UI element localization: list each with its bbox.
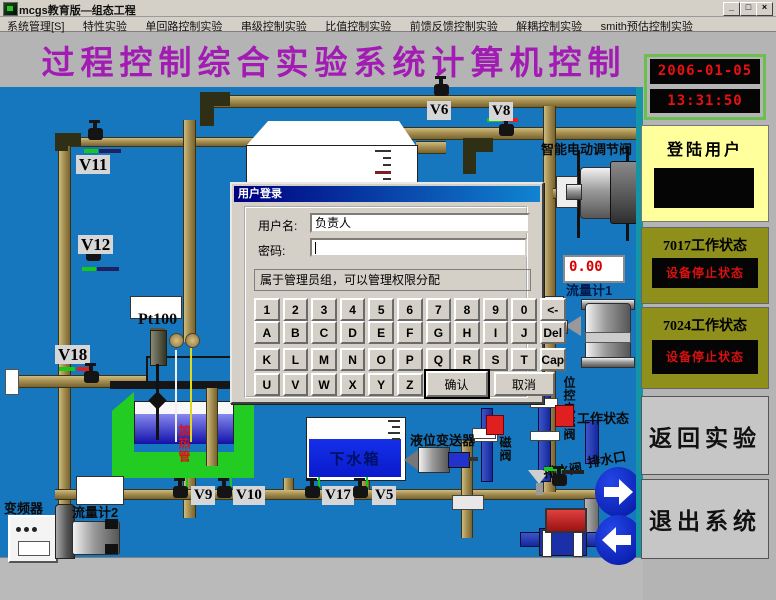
key-g[interactable]: G [426, 321, 452, 344]
pipe-elbow [55, 133, 68, 151]
key-cap[interactable]: Cap [540, 348, 566, 371]
username-combobox[interactable]: 负责人 [310, 213, 530, 233]
menu-item-single-loop[interactable]: 单回路控制实验 [145, 20, 222, 34]
flow-direction-right-icon [595, 467, 642, 517]
restore-button[interactable]: □ [740, 2, 757, 16]
status-7017-title: 7017工作状态 [642, 235, 768, 255]
key-x[interactable]: X [340, 373, 366, 396]
flow-meter-leg [542, 530, 552, 557]
key-d[interactable]: D [340, 321, 366, 344]
key-s[interactable]: S [483, 348, 509, 371]
pipe-elbow [200, 92, 214, 126]
menu-item-characteristic[interactable]: 特性实验 [83, 20, 127, 34]
key-backspace[interactable]: <- [540, 298, 566, 321]
mcgs-window: mcgs教育版—组态工程 _ □ × 系统管理[S] 特性实验 单回路控制实验 … [0, 0, 776, 600]
key-0[interactable]: 0 [511, 298, 537, 321]
key-4[interactable]: 4 [340, 298, 366, 321]
key-6[interactable]: 6 [397, 298, 423, 321]
pt100-label: Pt100 [138, 311, 177, 329]
status-7017-value: 设备停止状态 [652, 258, 758, 288]
valve-v5-icon[interactable] [353, 486, 368, 498]
valve-v17-icon[interactable] [305, 486, 320, 498]
work-status-label: 工作状态 [577, 408, 629, 427]
key-v[interactable]: V [283, 373, 309, 396]
pipe-elbow [463, 140, 476, 174]
dialog-titlebar: 用户登录 [234, 186, 540, 202]
status-panel-7024: 7024工作状态 设备停止状态 [641, 307, 769, 389]
date-display: 2006-01-05 [650, 59, 760, 84]
key-3[interactable]: 3 [311, 298, 337, 321]
valve-v5-label: V5 [372, 486, 396, 505]
key-q[interactable]: Q [426, 348, 452, 371]
key-h[interactable]: H [454, 321, 480, 344]
valve-v18-icon[interactable] [84, 371, 99, 383]
back-to-experiment-button[interactable]: 返回实验 [641, 396, 769, 475]
login-user-value [654, 168, 754, 208]
key-w[interactable]: W [311, 373, 337, 396]
key-o[interactable]: O [368, 348, 394, 371]
login-dialog: 用户登录 用户名: 负责人 密码: 属于管理员组，可以管理权限分配 1 2 3 … [230, 182, 544, 404]
valve-v11-label: V11 [76, 155, 110, 174]
flow-direction-left-icon [595, 515, 642, 565]
valve-v6-label: V6 [427, 101, 451, 120]
menu-item-ratio[interactable]: 比值控制实验 [325, 20, 391, 34]
smart-valve-label: 智能电动调节阀 [541, 139, 632, 158]
status-7024-title: 7024工作状态 [642, 315, 768, 335]
menu-item-decoupling[interactable]: 解耦控制实验 [516, 20, 582, 34]
pt100-sensor [150, 330, 167, 366]
pipe-segment [283, 478, 294, 490]
level-transmitter-label: 液位变送器 [410, 430, 475, 449]
window-title: mcgs教育版—组态工程 [19, 2, 136, 18]
level-transmitter-rod [468, 457, 478, 461]
lower-tank-water: 下水箱 [309, 439, 401, 477]
level-transmitter-body [418, 447, 450, 473]
valve-v17-label: V17 [322, 486, 354, 505]
heater-element-head [169, 333, 184, 348]
key-f[interactable]: F [397, 321, 423, 344]
status-panel-7017: 7017工作状态 设备停止状态 [641, 227, 769, 304]
key-1[interactable]: 1 [254, 298, 280, 321]
pump-port [105, 544, 118, 554]
heater-pipe-label: 加热管 [176, 424, 193, 472]
tank-inlet-pipe [206, 388, 218, 466]
menu-item-feedforward[interactable]: 前馈反馈控制实验 [410, 20, 498, 34]
keyboard-row: K L M N O P Q R S T Cap [254, 348, 566, 371]
key-t[interactable]: T [511, 348, 537, 371]
confirm-button[interactable]: 确认 [426, 371, 488, 397]
heater-element-head [185, 333, 200, 348]
pipe-flange [530, 431, 560, 441]
valve-v9-icon[interactable] [173, 486, 188, 498]
flow-meter1-label: 流量计1 [566, 280, 612, 299]
menu-bar: 系统管理[S] 特性实验 单回路控制实验 串级控制实验 比值控制实验 前馈反馈控… [0, 17, 776, 32]
pipe-tee [452, 495, 484, 510]
window-titlebar: mcgs教育版—组态工程 _ □ × [0, 0, 776, 17]
key-9[interactable]: 9 [483, 298, 509, 321]
key-p[interactable]: P [397, 348, 423, 371]
menu-item-system[interactable]: 系统管理[S] [7, 20, 64, 34]
app-icon [3, 2, 18, 16]
pipe-segment [183, 120, 196, 342]
solenoid-label: 磁阀 [497, 436, 514, 472]
key-j[interactable]: J [511, 321, 537, 344]
pump-flange [581, 357, 635, 368]
key-b[interactable]: B [283, 321, 309, 344]
level-transmitter-tip [448, 452, 470, 468]
minimize-button[interactable]: _ [723, 2, 740, 16]
key-r[interactable]: R [454, 348, 480, 371]
key-e[interactable]: E [368, 321, 394, 344]
key-k[interactable]: K [254, 348, 280, 371]
valve-v11-icon[interactable] [88, 128, 103, 140]
valve-v18-label: V18 [55, 345, 90, 364]
permission-info: 属于管理员组，可以管理权限分配 [254, 269, 531, 291]
pump-band [585, 332, 631, 343]
valve-v12-label: V12 [78, 235, 113, 254]
close-button[interactable]: × [756, 2, 773, 16]
pipe-segment [416, 141, 446, 154]
login-user-label: 登陆用户 [642, 136, 768, 160]
pipe-segment [58, 142, 71, 507]
cancel-button[interactable]: 取消 [494, 372, 555, 396]
keyboard-row: U V W X Y Z 确认 取消 [254, 373, 555, 397]
valve-v8-icon[interactable] [499, 124, 514, 136]
menu-item-cascade[interactable]: 串级控制实验 [241, 20, 307, 34]
key-a[interactable]: A [254, 321, 280, 344]
key-y[interactable]: Y [368, 373, 394, 396]
key-l[interactable]: L [283, 348, 309, 371]
status-7024-value: 设备停止状态 [652, 340, 758, 374]
smart-valve-stem [566, 184, 582, 200]
keyboard-row: A B C D E F G H I J Del [254, 321, 566, 344]
key-7[interactable]: 7 [426, 298, 452, 321]
login-user-panel: 登陆用户 [641, 125, 769, 222]
inverter-device [8, 515, 58, 563]
username-label: 用户名: [258, 217, 297, 234]
flow-meter-leg [573, 530, 583, 557]
key-del[interactable]: Del [540, 321, 566, 344]
key-2[interactable]: 2 [283, 298, 309, 321]
solenoid-coil [555, 405, 574, 427]
pipe-flange [5, 369, 19, 395]
flow-meter1-display: 0.00 [563, 255, 625, 283]
key-m[interactable]: M [311, 348, 337, 371]
key-i[interactable]: I [483, 321, 509, 344]
password-label: 密码: [258, 242, 285, 259]
solenoid-coil [486, 415, 504, 435]
key-u[interactable]: U [254, 373, 280, 396]
pipe-segment [200, 95, 636, 108]
flow-meter2-label: 流量计2 [72, 502, 118, 521]
keyboard-row: 1 2 3 4 5 6 7 8 9 0 <- [254, 298, 566, 321]
key-c[interactable]: C [311, 321, 337, 344]
time-display: 13:31:50 [650, 89, 760, 113]
datetime-panel: 2006-01-05 13:31:50 [644, 54, 766, 120]
exit-system-button[interactable]: 退出系统 [641, 479, 769, 559]
flow-meter2-display [76, 476, 124, 505]
level-transmitter-cone [404, 450, 418, 470]
flow-meter-head [545, 508, 587, 533]
inverter-label: 变频器 [4, 498, 43, 517]
valve-v8-label: V8 [489, 102, 513, 121]
menu-item-smith[interactable]: smith预估控制实验 [601, 20, 693, 34]
upper-tank-top [246, 121, 416, 146]
password-input[interactable] [310, 238, 527, 257]
key-n[interactable]: N [340, 348, 366, 371]
tank-frame-line [146, 356, 148, 383]
drain-funnel-stem [536, 483, 543, 495]
valve-v9-label: V9 [191, 486, 215, 505]
page-title: 过程控制综合实验系统计算机控制 [28, 36, 640, 86]
key-z[interactable]: Z [397, 373, 423, 396]
floor [0, 557, 643, 600]
valve-v10-label: V10 [233, 486, 265, 505]
valve-v6-icon[interactable] [434, 84, 449, 96]
drain-valve-icon[interactable] [552, 474, 567, 486]
valve-v10-icon[interactable] [217, 486, 232, 498]
smart-valve-motor [610, 161, 638, 224]
key-5[interactable]: 5 [368, 298, 394, 321]
key-8[interactable]: 8 [454, 298, 480, 321]
